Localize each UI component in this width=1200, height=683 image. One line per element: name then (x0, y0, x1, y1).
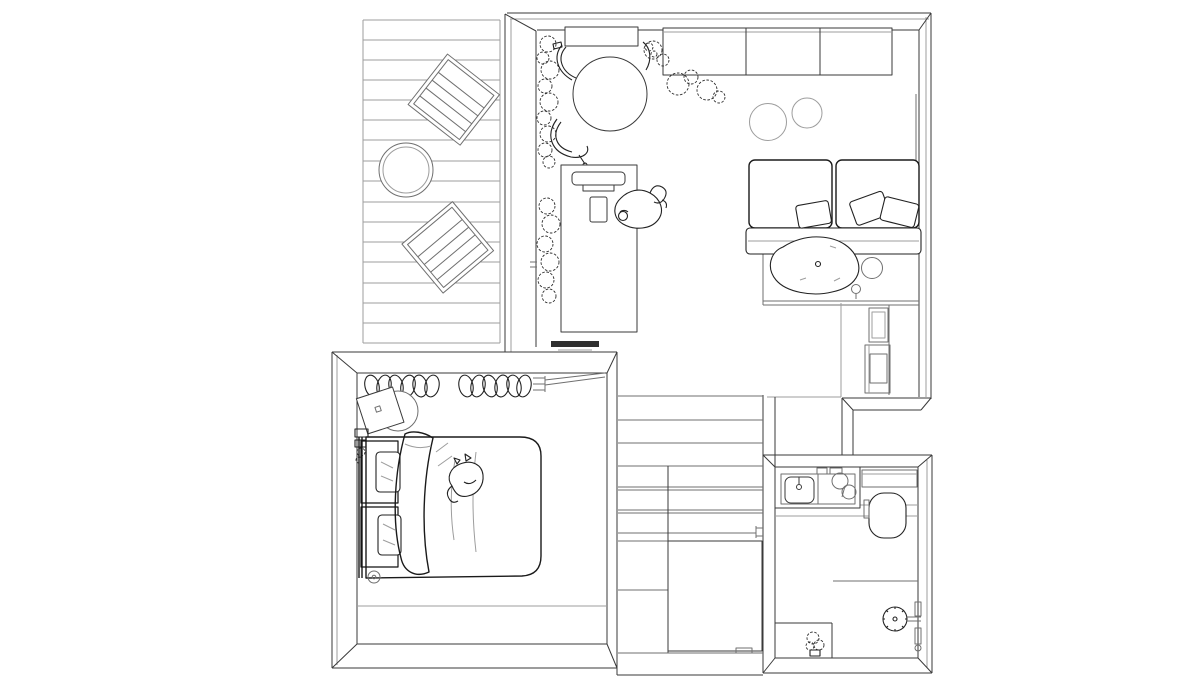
mirror-shelf (862, 470, 917, 487)
storage-cabinet (841, 303, 890, 397)
lounge-chair-2 (402, 202, 494, 293)
dining-chair-top (553, 42, 576, 80)
deck-round-table (379, 143, 433, 197)
hall-walls (763, 395, 775, 673)
wall-top-right-bevel (919, 13, 931, 30)
hall-outer-bottom (617, 668, 763, 675)
room-hall-closet (617, 395, 775, 675)
room-living (505, 13, 931, 455)
vanity-counter (775, 467, 860, 508)
kitchen-upper-cabinet (565, 27, 638, 46)
plant-row-left-wall (537, 36, 560, 303)
rail-wall-bracket (533, 373, 605, 392)
wall-top-left-bevel (505, 14, 536, 31)
kitchen-counter (663, 28, 892, 75)
floor-pouf-2 (792, 98, 822, 128)
floor-plan-page (0, 0, 1200, 683)
bathroom-plant (806, 632, 824, 656)
small-lamp (852, 285, 861, 300)
small-pillow-bottom (378, 515, 401, 555)
room-terrace (363, 20, 500, 343)
round-side-table (862, 258, 883, 279)
toilet (864, 493, 906, 538)
room-bathroom (763, 455, 932, 673)
closet-shelves (618, 466, 763, 653)
work-desk (561, 165, 637, 332)
dining-table (573, 57, 647, 131)
dining-chair-right (643, 42, 657, 70)
floor-pouf-1 (750, 104, 787, 141)
dining-chair-bottom (551, 119, 588, 167)
lounge-chair-1 (408, 54, 499, 145)
wall-bottom-right (842, 398, 931, 410)
sliding-door-panel (668, 541, 762, 651)
wall-passage (842, 398, 853, 455)
corner-bench (775, 623, 832, 658)
stair-treads (618, 396, 763, 466)
wall-tv (551, 341, 599, 347)
rail-bracket (756, 526, 763, 538)
double-bed (359, 432, 541, 583)
room-bedroom (332, 352, 617, 668)
floor-plan-drawing (0, 0, 1200, 683)
